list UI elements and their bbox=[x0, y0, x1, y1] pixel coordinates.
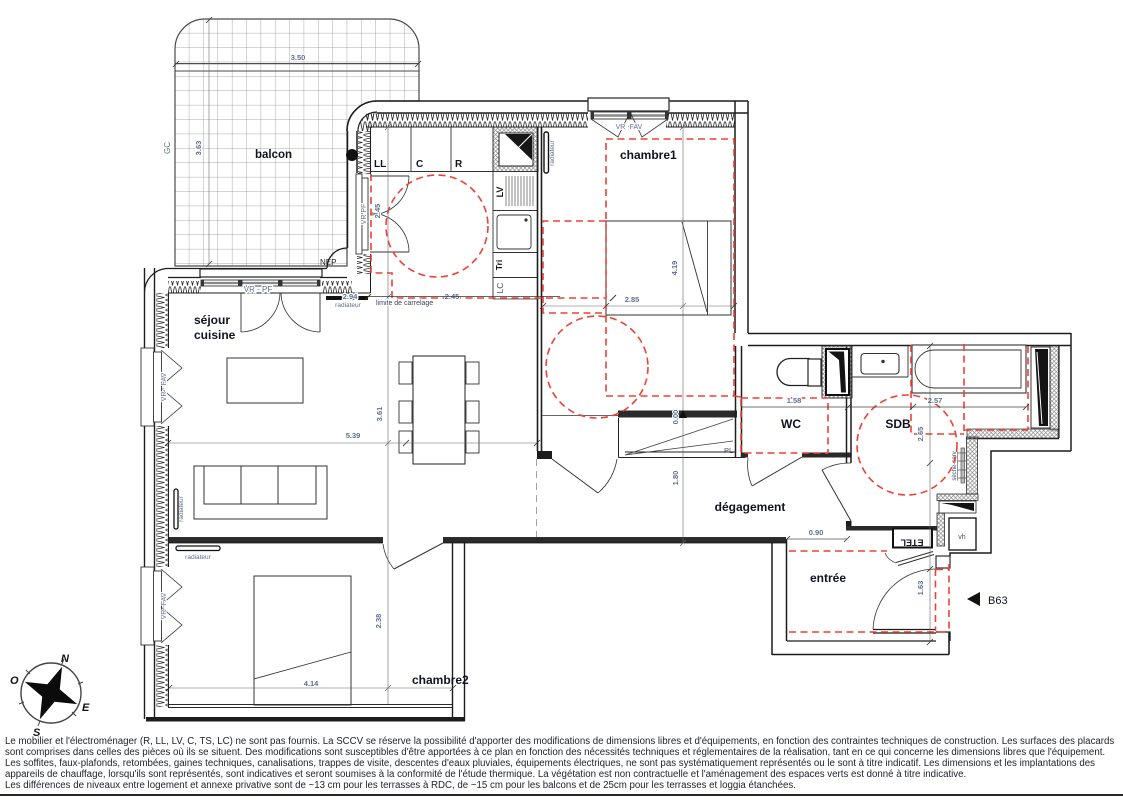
svg-text:SDB: SDB bbox=[885, 417, 911, 431]
svg-text:vh: vh bbox=[958, 534, 966, 541]
svg-text:0.90: 0.90 bbox=[809, 528, 824, 537]
svg-text:3.61: 3.61 bbox=[375, 407, 384, 422]
svg-text:LV: LV bbox=[495, 187, 505, 198]
svg-text:séjour: séjour bbox=[194, 313, 230, 327]
svg-text:2.94: 2.94 bbox=[343, 292, 358, 301]
svg-text:1.58: 1.58 bbox=[787, 396, 802, 405]
svg-text:5.39: 5.39 bbox=[346, 431, 361, 440]
svg-text:E: E bbox=[82, 702, 90, 714]
svg-text:3.50: 3.50 bbox=[291, 53, 306, 62]
svg-text:R: R bbox=[455, 159, 463, 170]
svg-text:ETEL: ETEL bbox=[900, 538, 924, 548]
svg-text:PL: PL bbox=[724, 446, 733, 455]
svg-text:4.14: 4.14 bbox=[304, 679, 319, 688]
svg-text:VR PF: VR PF bbox=[361, 204, 368, 225]
svg-text:1.63: 1.63 bbox=[916, 581, 925, 596]
svg-text:cuisine: cuisine bbox=[194, 328, 236, 342]
svg-text:entrée: entrée bbox=[810, 571, 846, 585]
svg-text:O: O bbox=[10, 675, 19, 687]
svg-text:radiateur: radiateur bbox=[178, 495, 185, 521]
svg-text:VR - FAV: VR - FAV bbox=[161, 372, 168, 401]
svg-text:sèche-serv: sèche-serv bbox=[952, 451, 958, 480]
svg-text:C: C bbox=[416, 159, 423, 170]
svg-text:radiateur: radiateur bbox=[549, 139, 556, 165]
svg-text:balcon: balcon bbox=[255, 149, 292, 161]
svg-text:limite de carrelage: limite de carrelage bbox=[376, 300, 433, 307]
svg-text:0.00: 0.00 bbox=[671, 410, 680, 425]
svg-text:LC: LC bbox=[495, 283, 505, 294]
svg-text:LL: LL bbox=[374, 159, 386, 170]
svg-text:1.80: 1.80 bbox=[671, 471, 680, 486]
svg-text:N: N bbox=[61, 653, 70, 665]
svg-text:VR - PF: VR - PF bbox=[244, 285, 273, 294]
svg-text:Tri: Tri bbox=[494, 260, 504, 270]
svg-text:radiateur: radiateur bbox=[335, 302, 361, 309]
svg-text:dégagement: dégagement bbox=[715, 500, 786, 514]
svg-text:2.45: 2.45 bbox=[373, 204, 382, 219]
svg-text:2.38: 2.38 bbox=[374, 614, 383, 629]
svg-text:VR -FAV: VR -FAV bbox=[616, 124, 643, 131]
svg-text:2.85: 2.85 bbox=[625, 295, 640, 304]
svg-text:B63: B63 bbox=[988, 595, 1008, 607]
svg-text:VR -FAV: VR -FAV bbox=[161, 592, 168, 619]
svg-text:2.65: 2.65 bbox=[916, 427, 925, 442]
svg-text:WC: WC bbox=[781, 417, 801, 431]
svg-text:chambre2: chambre2 bbox=[412, 673, 469, 687]
svg-text:4.19: 4.19 bbox=[670, 261, 679, 276]
svg-text:3.63: 3.63 bbox=[194, 141, 203, 156]
svg-text:chambre1: chambre1 bbox=[620, 148, 677, 162]
svg-text:radiateur: radiateur bbox=[185, 554, 211, 561]
svg-text:GC: GC bbox=[163, 142, 172, 154]
